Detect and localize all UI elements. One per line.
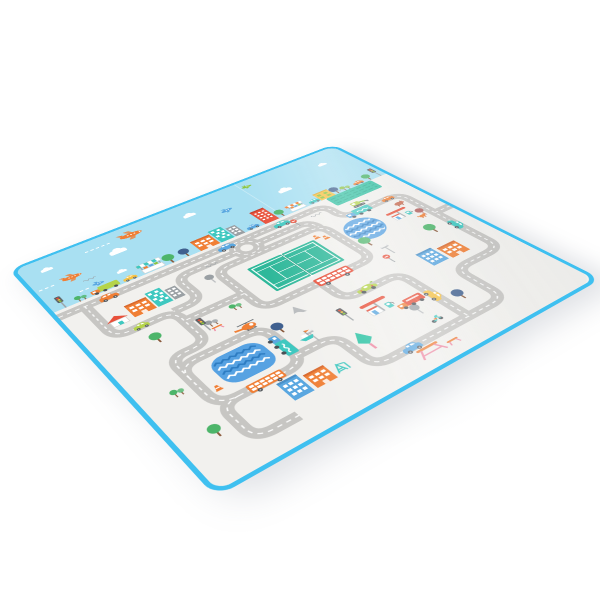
product-photo: Foldable baby play mat with a cartoon ci…: [0, 0, 600, 600]
play-mat: [9, 144, 600, 497]
mat-design: [14, 147, 594, 491]
